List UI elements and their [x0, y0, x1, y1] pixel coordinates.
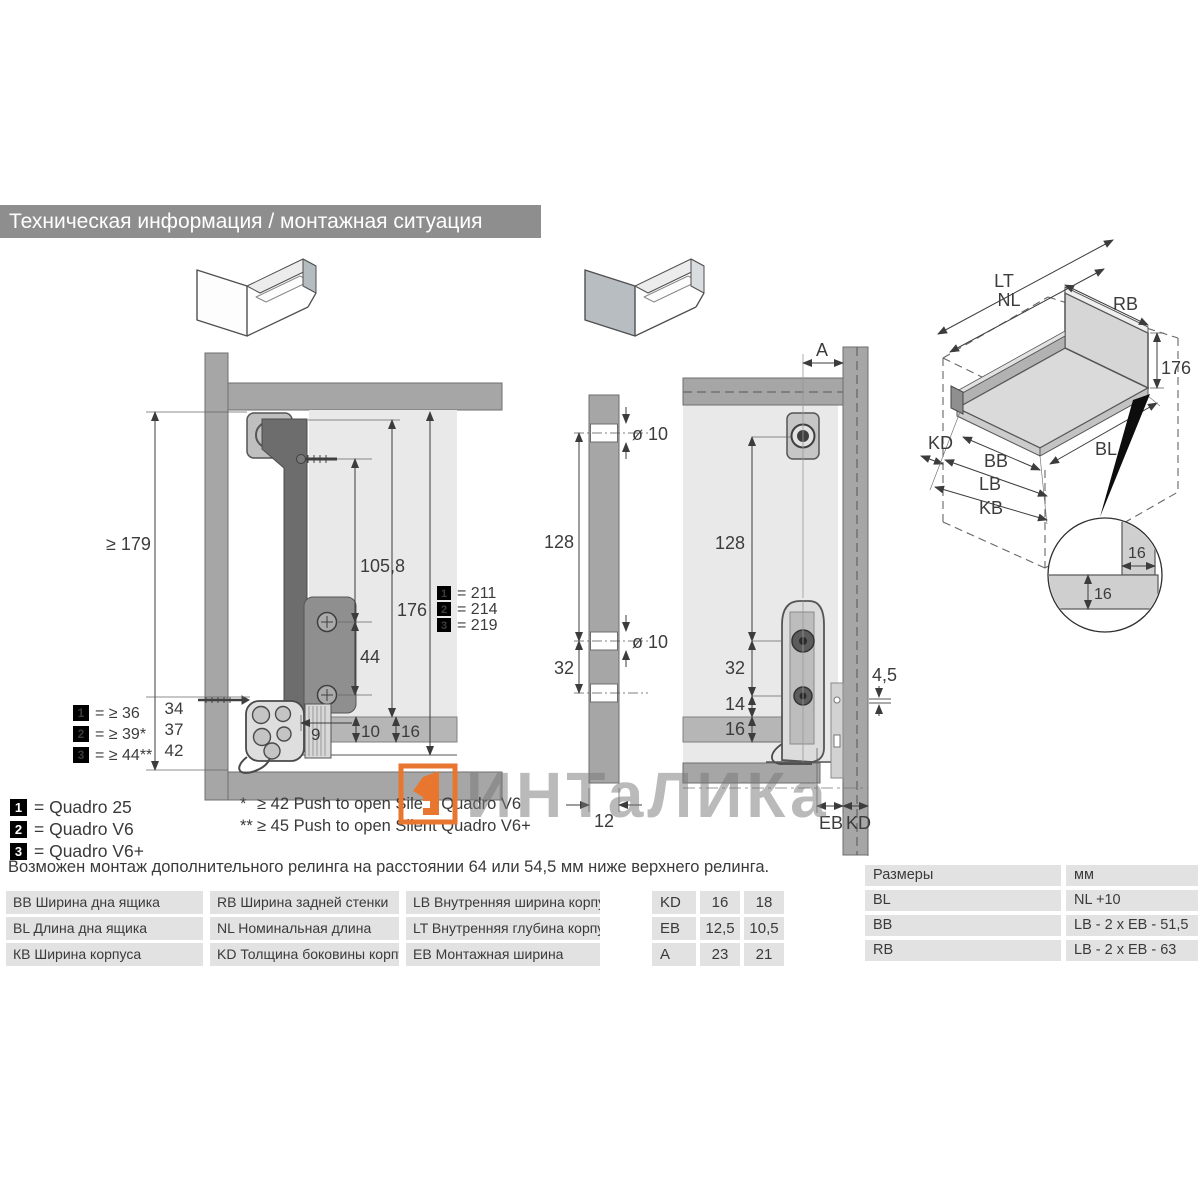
- dim-label-LT: LT: [994, 271, 1014, 291]
- dim-label-34: 34: [165, 699, 184, 718]
- kd-eb-a-table: KD 16 18 EB 12,5 10,5 A 23 21: [652, 891, 784, 966]
- legend-val: = ≥ 44**: [95, 747, 152, 764]
- legend-val: = 211: [457, 585, 496, 602]
- size-table-cell: NL +10: [1066, 890, 1198, 911]
- kd-table-cell: KD: [652, 891, 696, 914]
- dim-label-BL: BL: [1095, 439, 1117, 459]
- footnote: * ≥ 42 Push to open Silent Quadro V6: [240, 793, 531, 815]
- dim-label-dia10-mid: ø 10: [632, 632, 668, 652]
- dim-label-NL: NL: [997, 290, 1020, 310]
- iso-view-diagram: LT NL RB 176 KD BB LB KB BL: [921, 240, 1191, 568]
- glossary-cell: NL Номинальная длина: [210, 917, 399, 940]
- dim-label-16-v: 16: [1094, 586, 1112, 603]
- dim-label-179: ≥ 179: [106, 534, 151, 554]
- kd-table-cell: EB: [652, 917, 696, 940]
- dim-label-4-5: 4,5: [872, 665, 897, 685]
- kd-table-cell: A: [652, 943, 696, 966]
- dim-label-176: 176: [397, 600, 427, 620]
- size-table-cell: LB - 2 x EB - 63: [1066, 940, 1198, 961]
- cabinet-side-wall: [843, 347, 868, 855]
- footnote-text: ≥ 45 Push to open Silent Quadro V6+: [257, 817, 531, 836]
- dim-label-128: 128: [715, 533, 745, 553]
- footnote-text: ≥ 42 Push to open Silent Quadro V6: [257, 795, 521, 814]
- dim-label-128: 128: [544, 532, 574, 552]
- dim-label-105-8: 105,8: [360, 556, 405, 576]
- rail-mounting-note: Возможен монтаж дополнительного релинга …: [8, 858, 769, 877]
- glossary-cell: RB Ширина задней стенки: [210, 891, 399, 914]
- legend-val: = ≥ 36: [95, 705, 140, 722]
- rail-strip-diagram: ø 10 ø 10 128 32 12: [544, 395, 668, 831]
- size-table-header: Размеры: [865, 865, 1061, 886]
- dim-label-dia10-top: ø 10: [632, 424, 668, 444]
- dim-label-KD: KD: [846, 813, 871, 833]
- dim-label-16: 16: [401, 722, 420, 741]
- rail-strip: [589, 395, 619, 783]
- legend-val: = 214: [457, 601, 498, 618]
- dim-label-LB: LB: [979, 474, 1001, 494]
- legend-num: 3: [441, 620, 447, 632]
- product-legend-row: 2 = Quadro V6: [10, 818, 144, 840]
- legend-val: = ≥ 39*: [95, 726, 146, 743]
- product-label: = Quadro 25: [34, 797, 132, 818]
- glossary-cell: BB Ширина дна ящика: [6, 891, 203, 914]
- legend-square-2: 2: [10, 821, 27, 838]
- sizes-formula-table: Размеры мм BL NL +10 BB LB - 2 x EB - 51…: [865, 865, 1198, 961]
- dim-label-37: 37: [165, 720, 184, 739]
- size-table-header: мм: [1066, 865, 1198, 886]
- dim-label-KB: KB: [979, 498, 1003, 518]
- dim-label-16: 16: [725, 719, 745, 739]
- footnote: ** ≥ 45 Push to open Silent Quadro V6+: [240, 815, 531, 837]
- bottom-shelf: [683, 763, 820, 783]
- dim-label-32: 32: [725, 658, 745, 678]
- catalog-page: Техническая информация / монтажная ситуа…: [0, 0, 1200, 1200]
- legend-num: 2: [78, 727, 85, 741]
- dim-label-RB: RB: [1113, 294, 1138, 314]
- size-table-cell: RB: [865, 940, 1061, 961]
- kd-table-cell: 10,5: [744, 917, 784, 940]
- dim-label-32: 32: [554, 658, 574, 678]
- size-table-cell: LB - 2 x EB - 51,5: [1066, 915, 1198, 936]
- height-legend: 1 = 211 2 = 214 3 = 219: [437, 585, 498, 634]
- kd-table-cell: 18: [744, 891, 784, 914]
- top-shelf: [683, 378, 843, 405]
- kd-table-cell: 23: [700, 943, 740, 966]
- cabinet-top-shelf: [228, 383, 502, 410]
- footnote-marker: **: [240, 817, 257, 836]
- watermark-logo-icon: [398, 763, 458, 825]
- product-legend: 1 = Quadro 25 2 = Quadro V6 3 = Quadro V…: [10, 796, 144, 862]
- size-table-cell: BB: [865, 915, 1061, 936]
- legend-num: 1: [78, 706, 85, 720]
- side-section-diagram: ≥ 179 105,8 44 176 34 37 42 9 10 16 1 = …: [73, 353, 502, 800]
- legend-square-3: 3: [10, 843, 27, 860]
- dim-label-9: 9: [311, 725, 320, 744]
- back-view-diagram: A 128 32 14 16 4,5 EB KD: [683, 340, 897, 856]
- kd-table-cell: 21: [744, 943, 784, 966]
- legend-val: = 219: [457, 617, 498, 634]
- technical-diagrams: ≥ 179 105,8 44 176 34 37 42 9 10 16 1 = …: [0, 0, 1200, 1200]
- dim-label-42: 42: [165, 741, 184, 760]
- footnotes: * ≥ 42 Push to open Silent Quadro V6 ** …: [240, 793, 531, 837]
- dim-label-44: 44: [360, 647, 380, 667]
- legend-num: 2: [441, 604, 447, 616]
- glossary-cell: KD Толщина боковины корпуса: [210, 943, 399, 966]
- dim-label-12: 12: [594, 811, 614, 831]
- glossary-cell: LB Внутренняя ширина корпуса: [406, 891, 600, 914]
- dim-label-BB: BB: [984, 451, 1008, 471]
- glossary-cell: EB Монтажная ширина: [406, 943, 600, 966]
- legend-square-1: 1: [10, 799, 27, 816]
- dim-label-A: A: [816, 340, 828, 360]
- product-label: = Quadro V6: [34, 819, 134, 840]
- cabinet-side-panel: [205, 353, 228, 800]
- page-title: Техническая информация / монтажная ситуа…: [0, 205, 541, 238]
- abbreviation-glossary-table: BB Ширина дна ящика RB Ширина задней сте…: [6, 891, 600, 966]
- footnote-marker: *: [240, 795, 257, 814]
- glossary-cell: BL Длина дна ящика: [6, 917, 203, 940]
- glossary-cell: КВ Ширина корпуса: [6, 943, 203, 966]
- detail-circle: 16 16: [1044, 512, 1162, 632]
- legend-num: 3: [78, 748, 85, 762]
- dim-label-KD: KD: [928, 433, 953, 453]
- dim-label-10: 10: [361, 722, 380, 741]
- dim-label-16-h: 16: [1128, 545, 1146, 562]
- drawer-icon-high: [585, 259, 704, 336]
- dim-label-176: 176: [1161, 358, 1191, 378]
- kd-table-cell: 12,5: [700, 917, 740, 940]
- size-table-cell: BL: [865, 890, 1061, 911]
- dim-label-14: 14: [725, 694, 745, 714]
- legend-num: 1: [441, 588, 447, 600]
- kd-table-cell: 16: [700, 891, 740, 914]
- drawer-icon-low: [197, 259, 316, 336]
- glossary-cell: LT Внутренняя глубина корпуса: [406, 917, 600, 940]
- min-clearance-legend: 1 = ≥ 36 2 = ≥ 39* 3 = ≥ 44**: [73, 705, 152, 764]
- product-legend-row: 1 = Quadro 25: [10, 796, 144, 818]
- dim-label-EB: EB: [819, 813, 843, 833]
